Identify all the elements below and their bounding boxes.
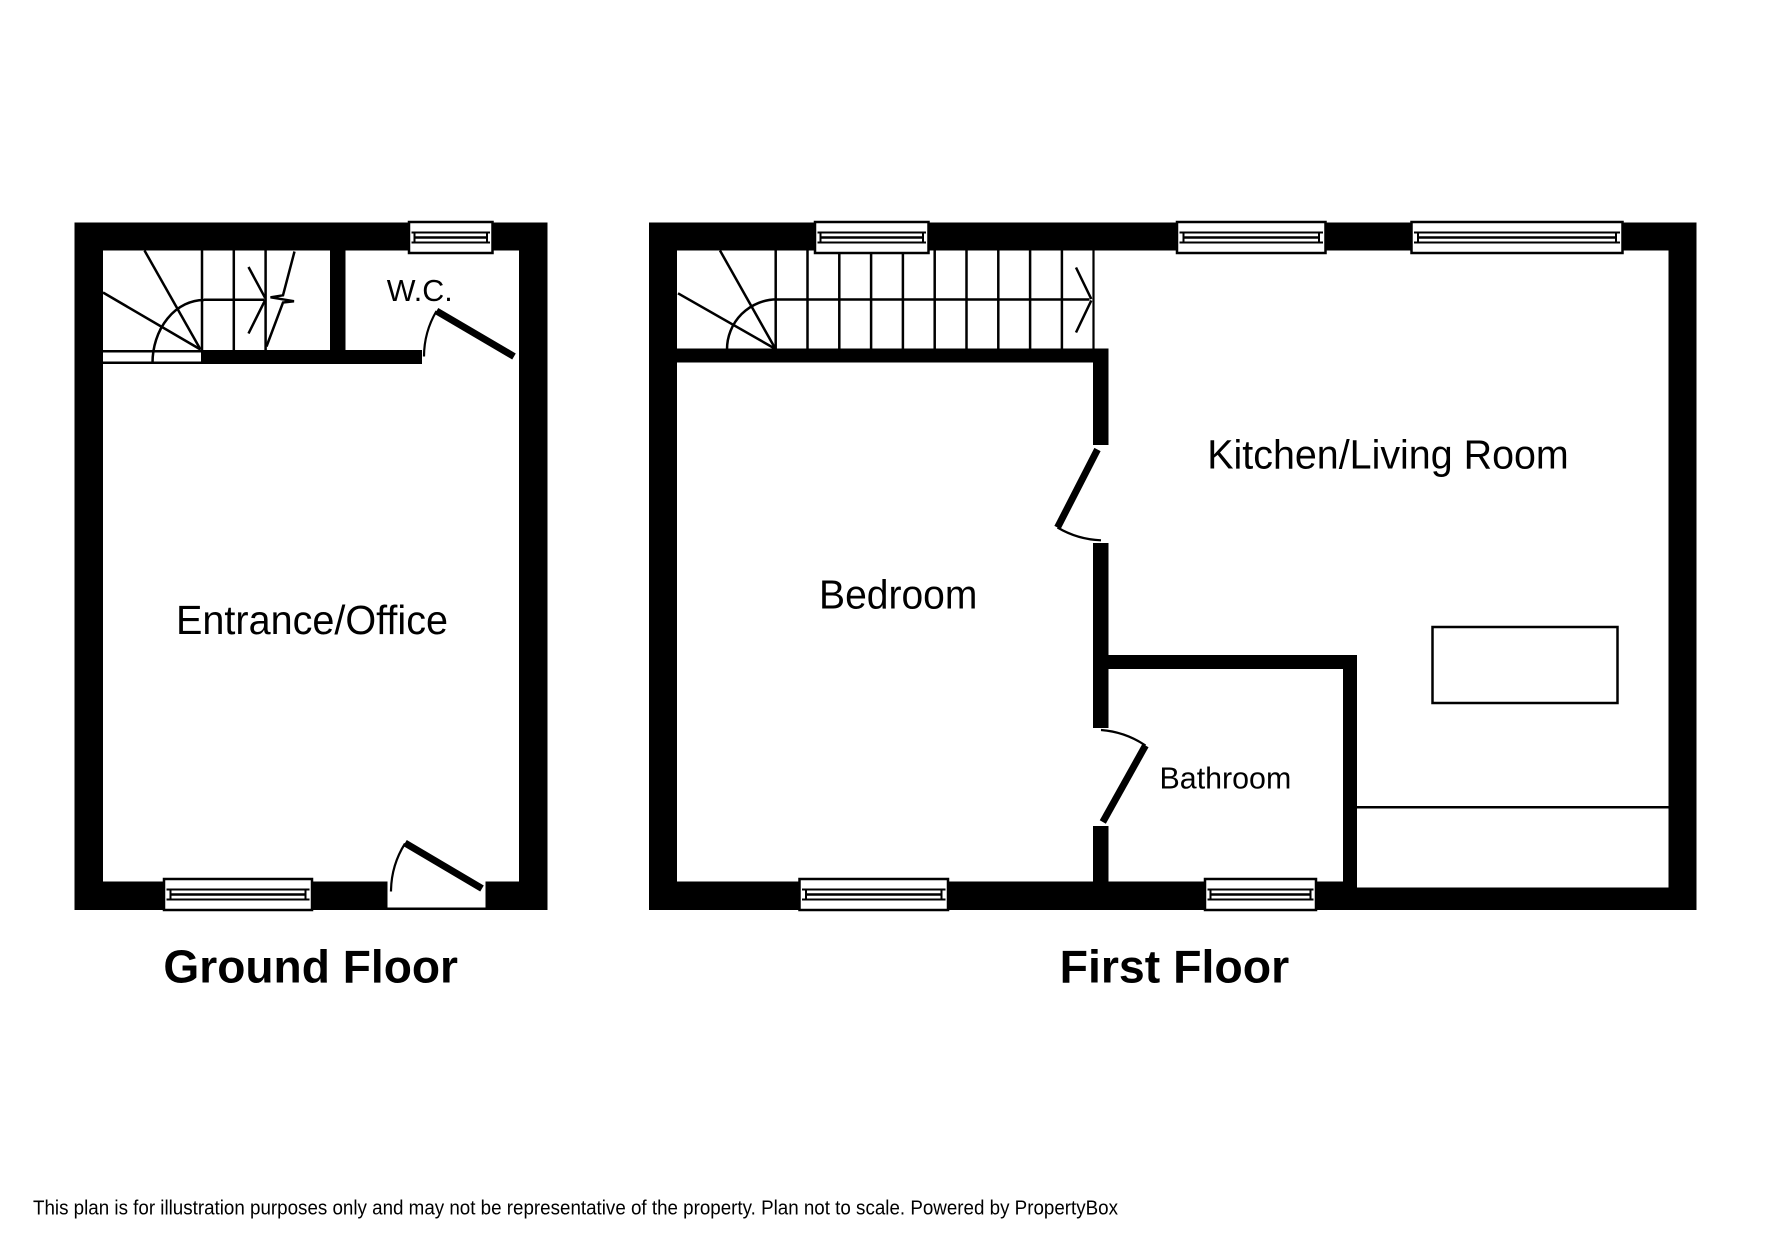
svg-text:First Floor: First Floor: [1060, 941, 1290, 993]
svg-text:Bedroom: Bedroom: [819, 572, 977, 618]
svg-text:Bathroom: Bathroom: [1160, 762, 1292, 796]
svg-text:This plan is for illustration: This plan is for illustration purposes o…: [33, 1198, 1118, 1220]
svg-text:W.C.: W.C.: [387, 274, 453, 308]
svg-text:Entrance/Office: Entrance/Office: [176, 597, 448, 643]
svg-text:Kitchen/Living Room: Kitchen/Living Room: [1207, 432, 1569, 478]
svg-text:Ground Floor: Ground Floor: [163, 941, 458, 993]
